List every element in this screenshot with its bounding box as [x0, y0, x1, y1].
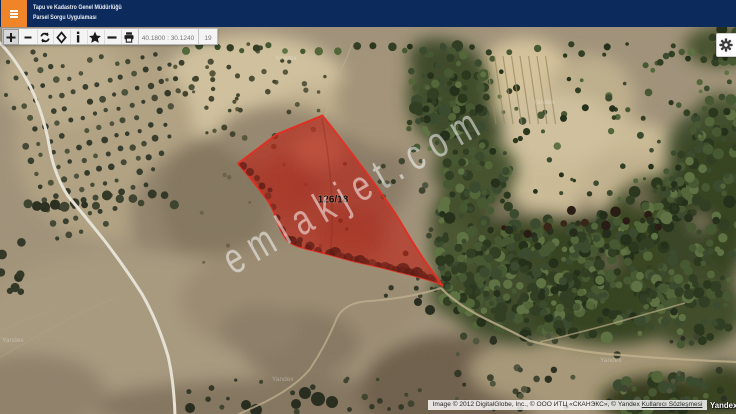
svg-text:19: 19 [204, 35, 212, 42]
svg-text:40.1800 : 30.1240: 40.1800 : 30.1240 [142, 35, 195, 42]
